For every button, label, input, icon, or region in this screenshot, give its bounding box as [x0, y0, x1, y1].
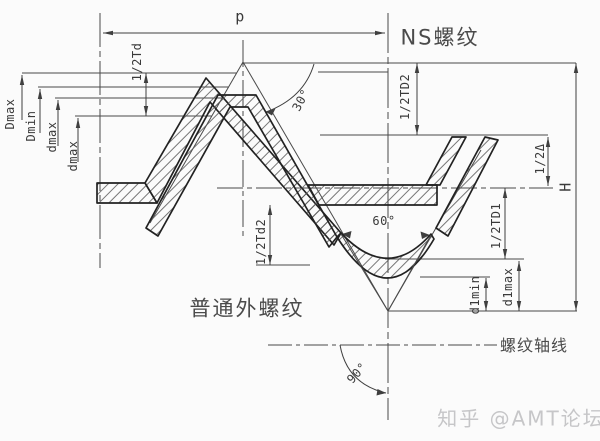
dmax-upper-label: dmax — [46, 122, 58, 153]
watermark: 知乎 @AMT论坛 — [437, 403, 600, 432]
drawing-canvas — [0, 0, 600, 441]
thread-axis-label: 螺纹轴线 — [500, 338, 568, 354]
half-TD2-label: 1/2TD2 — [399, 74, 411, 120]
pitch-label: p — [235, 10, 245, 25]
Dmax-label: Dmax — [4, 99, 16, 130]
half-TD1-label: 1/2TD1 — [490, 203, 502, 249]
half-delta-label: 1/2Δ — [534, 144, 546, 175]
ns-thread-label: NS螺纹 — [400, 28, 479, 49]
ordinary-thread-label: 普通外螺纹 — [190, 299, 305, 320]
half-Td2-label: 1/2Td2 — [255, 219, 267, 265]
thread-profile-drawing: p NS螺纹 1/2Td 1/2TD2 30° Dmax Dmin dmax d… — [0, 0, 600, 441]
dmax-lower-label: dmax — [67, 141, 79, 172]
band-right-upper — [426, 137, 466, 185]
H-label: H — [559, 182, 574, 192]
angle-60-label: 60° — [372, 215, 395, 227]
half-Td-label: 1/2Td — [131, 43, 143, 82]
band-flat-right — [308, 185, 437, 205]
Dmin-label: Dmin — [25, 111, 37, 142]
d1max-label: d1max — [502, 268, 514, 307]
d1min-label: d1min — [469, 276, 481, 315]
